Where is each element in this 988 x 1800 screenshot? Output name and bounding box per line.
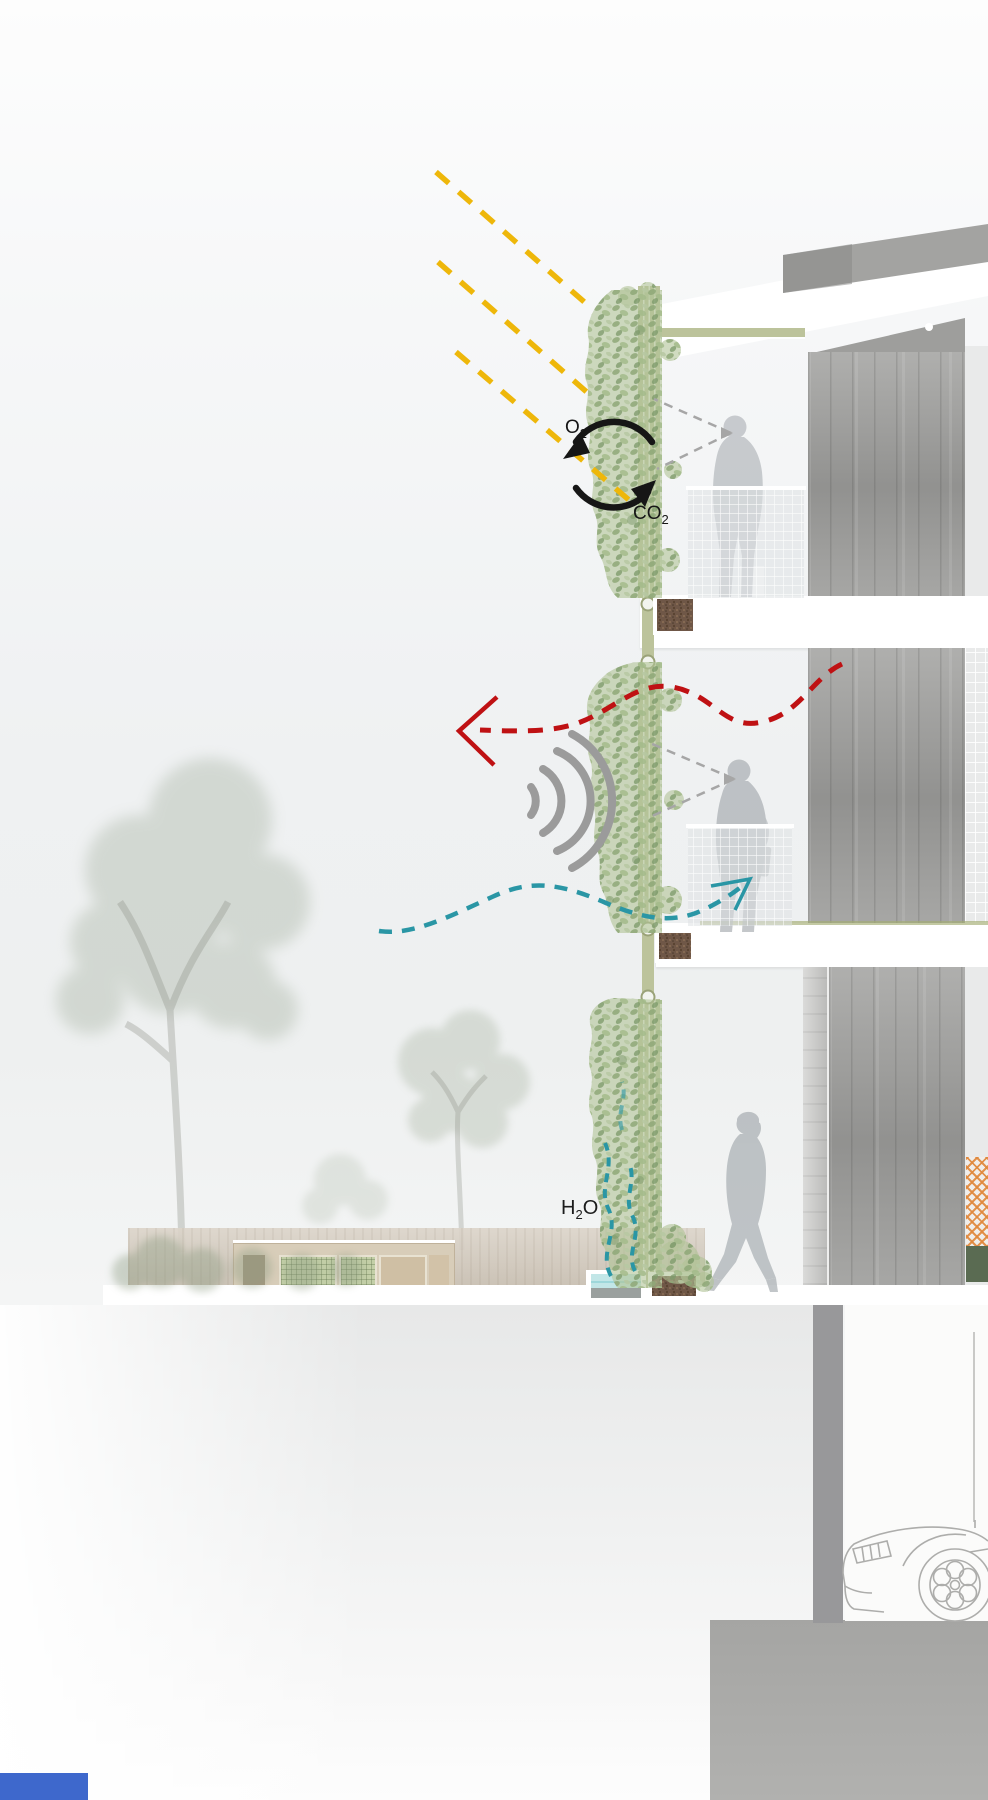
airflow-arrow <box>379 879 750 932</box>
heat-arrowhead-icon <box>459 697 497 765</box>
co2-label: CO2 <box>633 503 669 527</box>
sun-ray <box>456 352 636 506</box>
sun-rays-icon <box>436 172 636 506</box>
oxygen-cycle-icon: O2 CO2 <box>563 417 669 527</box>
sun-ray <box>436 172 590 307</box>
sight-cone-middle <box>650 743 734 817</box>
sound-absorption-icon <box>531 734 612 868</box>
h2o-label: H2O <box>561 1197 598 1222</box>
heat-reflection-arrow <box>459 664 842 765</box>
section-diagram: O2 CO2 <box>0 0 988 1800</box>
sight-cone-middle-arrow <box>724 773 736 785</box>
annotations: O2 CO2 <box>0 0 988 1800</box>
sight-cone-upper-arrow <box>721 427 733 439</box>
sight-cone-upper <box>654 399 731 469</box>
sun-ray <box>438 262 589 394</box>
o2-label: O2 <box>565 417 587 441</box>
o2-arc <box>576 422 652 442</box>
evaporation-icon <box>605 1082 636 1276</box>
